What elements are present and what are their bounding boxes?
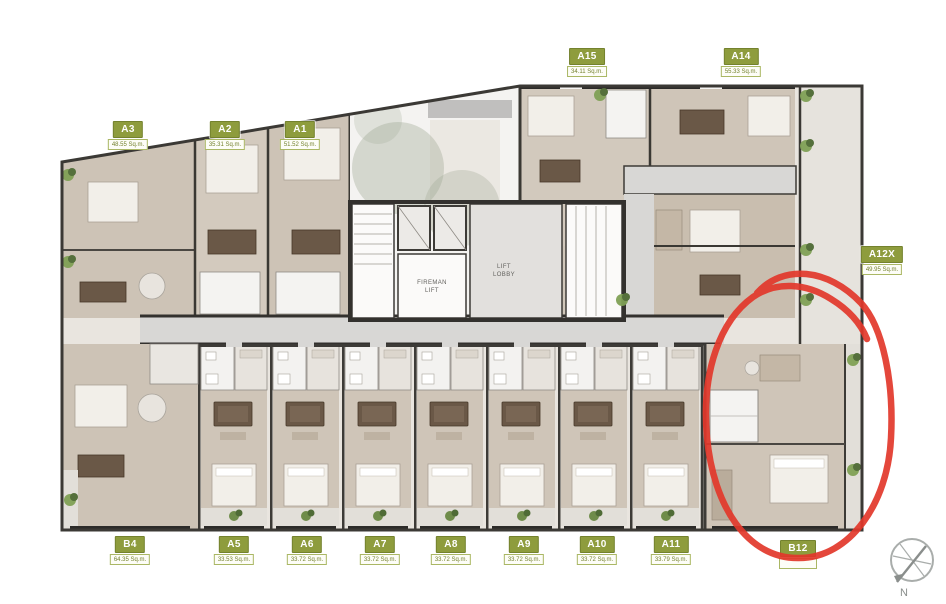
unit-label-a7: A7 33.72 Sq.m. — [360, 536, 400, 565]
unit-area: 35.31 Sq.m. — [205, 139, 245, 150]
floor-plan-drawing — [0, 0, 946, 604]
unit-area: 34.11 Sq.m. — [567, 66, 607, 77]
unit-area: 33.79 Sq.m. — [651, 554, 691, 565]
unit-name: A11 — [654, 536, 689, 553]
unit-name: A8 — [436, 536, 465, 553]
unit-area — [779, 558, 817, 569]
unit-name: A3 — [113, 121, 142, 138]
unit-label-a11: A11 33.79 Sq.m. — [651, 536, 691, 565]
unit-area: 33.72 Sq.m. — [287, 554, 327, 565]
unit-name: A5 — [219, 536, 248, 553]
unit-name: A1 — [285, 121, 314, 138]
unit-label-a8: A8 33.72 Sq.m. — [431, 536, 471, 565]
unit-name: A12X — [861, 246, 903, 263]
unit-area: 64.35 Sq.m. — [110, 554, 150, 565]
unit-name: B4 — [115, 536, 144, 553]
unit-label-a3: A3 48.55 Sq.m. — [108, 121, 148, 150]
unit-name: A14 — [723, 48, 758, 65]
unit-label-b4: B4 64.35 Sq.m. — [110, 536, 150, 565]
unit-name: A2 — [210, 121, 239, 138]
unit-label-a10: A10 33.72 Sq.m. — [577, 536, 617, 565]
unit-area: 33.53 Sq.m. — [214, 554, 254, 565]
unit-name: A7 — [365, 536, 394, 553]
floor-plan-page: A3 48.55 Sq.m. A2 35.31 Sq.m. A1 51.52 S… — [0, 0, 946, 604]
unit-area: 33.72 Sq.m. — [431, 554, 471, 565]
unit-name: A15 — [569, 48, 604, 65]
unit-label-a9: A9 33.72 Sq.m. — [504, 536, 544, 565]
unit-label-a12x: A12X 49.95 Sq.m. — [861, 246, 903, 275]
unit-name: A6 — [292, 536, 321, 553]
unit-label-a15: A15 34.11 Sq.m. — [567, 48, 607, 77]
unit-area: 33.72 Sq.m. — [360, 554, 400, 565]
unit-area: 51.52 Sq.m. — [280, 139, 320, 150]
unit-area: 49.95 Sq.m. — [862, 264, 902, 275]
unit-area: 55.33 Sq.m. — [721, 66, 761, 77]
unit-name: A10 — [579, 536, 614, 553]
unit-area: 33.72 Sq.m. — [577, 554, 617, 565]
unit-label-a2: A2 35.31 Sq.m. — [205, 121, 245, 150]
unit-label-a1: A1 51.52 Sq.m. — [280, 121, 320, 150]
unit-name: A9 — [509, 536, 538, 553]
unit-name: B12 — [780, 540, 815, 557]
lift-lobby-label: LIFT LOBBY — [493, 264, 515, 280]
unit-area: 33.72 Sq.m. — [504, 554, 544, 565]
unit-label-a6: A6 33.72 Sq.m. — [287, 536, 327, 565]
unit-label-b12: B12 — [779, 540, 817, 569]
unit-label-a14: A14 55.33 Sq.m. — [721, 48, 761, 77]
unit-area: 48.55 Sq.m. — [108, 139, 148, 150]
unit-label-a5: A5 33.53 Sq.m. — [214, 536, 254, 565]
fireman-lift-label: FIREMAN LIFT — [417, 280, 447, 296]
